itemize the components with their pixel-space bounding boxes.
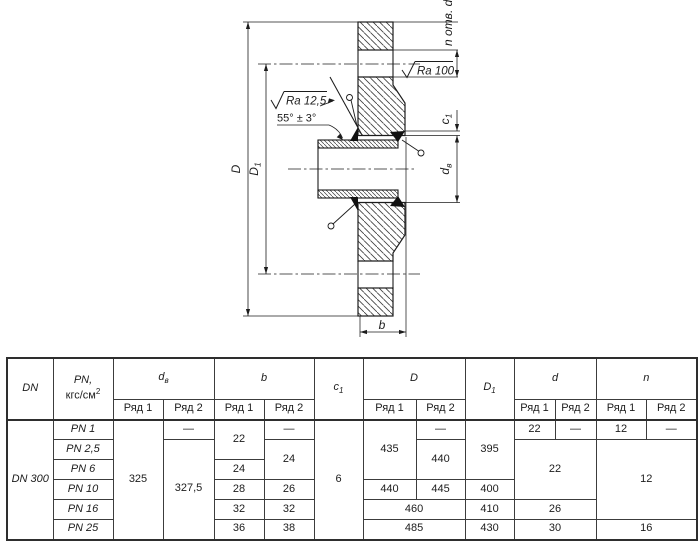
weld-bevel-annotation bbox=[277, 77, 362, 138]
col-header-dv: dв bbox=[113, 358, 214, 399]
label-dim-dv: dв bbox=[438, 163, 454, 175]
label-bevel-angle: 55° ± 3° bbox=[277, 113, 316, 125]
pipe-bottom-wall bbox=[318, 190, 398, 198]
flange-bottom-ring bbox=[358, 288, 393, 316]
cell-D-r2: 440 bbox=[416, 440, 465, 480]
subheader-b-row2: Ряд 2 bbox=[264, 399, 314, 420]
subheader-dv-row1: Ряд 1 bbox=[113, 399, 163, 420]
label-ra-bevel: Ra 12,5 bbox=[286, 96, 327, 108]
cell-D-r1: 435 bbox=[363, 420, 416, 480]
label-dim-D1: D1 bbox=[247, 162, 263, 176]
cell-D1: 410 bbox=[465, 500, 514, 520]
spec-table: DN PN,кгс/см2 dв b c1 D D1 d n Ряд 1 Ряд… bbox=[6, 357, 698, 541]
col-header-D1: D1 bbox=[465, 358, 514, 420]
cell-D-r2: 445 bbox=[416, 480, 465, 500]
cell-b-r1: 32 bbox=[214, 500, 264, 520]
flange-top-ring bbox=[358, 22, 393, 50]
col-header-b: b bbox=[214, 358, 314, 399]
cell-D1: 395 bbox=[465, 420, 514, 480]
flange-section-drawing: n отв. d Ra 100 Ra 12,5 55° ± 3° D D1 c1… bbox=[0, 0, 700, 356]
cell-pn: PN 1 bbox=[53, 420, 113, 440]
cell-D1: 430 bbox=[465, 520, 514, 540]
bevel-line bbox=[330, 77, 362, 135]
cell-D-r1: 440 bbox=[363, 480, 416, 500]
subheader-n-row1: Ряд 1 bbox=[596, 399, 646, 420]
cell-D: 485 bbox=[363, 520, 465, 540]
col-header-D: D bbox=[363, 358, 465, 399]
cell-pn: PN 6 bbox=[53, 460, 113, 480]
cell-d: 22 bbox=[514, 440, 596, 500]
weld-ref-circle-right bbox=[418, 150, 424, 156]
flange-upper-hub bbox=[358, 77, 405, 136]
roughness-leader-arrow bbox=[328, 98, 335, 103]
weld-ref-circle-top bbox=[347, 95, 353, 101]
cell-d-r1: 22 bbox=[514, 420, 555, 440]
cell-d: 26 bbox=[514, 500, 596, 520]
subheader-b-row1: Ряд 1 bbox=[214, 399, 264, 420]
weld-ref-circle-bottom bbox=[328, 223, 334, 229]
label-dim-D: D bbox=[229, 164, 243, 173]
cell-pn: PN 10 bbox=[53, 480, 113, 500]
col-header-n: n bbox=[596, 358, 697, 399]
cell-dv-r2: 327,5 bbox=[163, 440, 214, 540]
subheader-d-row1: Ряд 1 bbox=[514, 399, 555, 420]
cell-c1: 6 bbox=[314, 420, 363, 540]
cell-dn: DN 300 bbox=[7, 420, 53, 540]
pipe-top-wall bbox=[318, 140, 398, 148]
cell-b-r2: 24 bbox=[264, 440, 314, 480]
col-header-dn: DN bbox=[7, 358, 53, 420]
col-header-d: d bbox=[514, 358, 596, 399]
label-dim-b: b bbox=[379, 318, 386, 332]
table-row-pn1: DN 300 PN 1 325 — 22 — 6 435 — 395 22 — … bbox=[7, 420, 697, 440]
cell-b-r2: 38 bbox=[264, 520, 314, 540]
cell-n-r1: 12 bbox=[596, 420, 646, 440]
cell-dv-r1: 325 bbox=[113, 420, 163, 540]
cell-b-r2: — bbox=[264, 420, 314, 440]
subheader-d-row2: Ряд 2 bbox=[555, 399, 596, 420]
cell-n-r2: — bbox=[646, 420, 697, 440]
cell-b-r1: 36 bbox=[214, 520, 264, 540]
cell-D1: 400 bbox=[465, 480, 514, 500]
cell-d-r2: — bbox=[555, 420, 596, 440]
label-n-holes: n отв. d bbox=[441, 0, 455, 46]
flange-dimension-table: DN PN,кгс/см2 dв b c1 D D1 d n Ряд 1 Ряд… bbox=[6, 357, 696, 541]
cell-D-r2: — bbox=[416, 420, 465, 440]
cell-n: 12 bbox=[596, 440, 697, 520]
subheader-dv-row2: Ряд 2 bbox=[163, 399, 214, 420]
subheader-D-row2: Ряд 2 bbox=[416, 399, 465, 420]
cell-dv-r2: — bbox=[163, 420, 214, 440]
cell-pn: PN 16 bbox=[53, 500, 113, 520]
cell-b-r1: 28 bbox=[214, 480, 264, 500]
cell-b-r2: 26 bbox=[264, 480, 314, 500]
cell-b-r1: 22 bbox=[214, 420, 264, 460]
flange-lower-hub bbox=[358, 203, 405, 262]
cell-n: 16 bbox=[596, 520, 697, 540]
cell-b-r1: 24 bbox=[214, 460, 264, 480]
label-ra-face: Ra 100 bbox=[417, 66, 455, 78]
subheader-D-row1: Ряд 1 bbox=[363, 399, 416, 420]
cell-pn: PN 2,5 bbox=[53, 440, 113, 460]
cell-D: 460 bbox=[363, 500, 465, 520]
cell-pn: PN 25 bbox=[53, 520, 113, 540]
subheader-n-row2: Ряд 2 bbox=[646, 399, 697, 420]
cell-b-r2: 32 bbox=[264, 500, 314, 520]
cell-d: 30 bbox=[514, 520, 596, 540]
col-header-c1: c1 bbox=[314, 358, 363, 420]
label-dim-c1: c1 bbox=[438, 113, 454, 124]
col-header-pn: PN,кгс/см2 bbox=[53, 358, 113, 420]
